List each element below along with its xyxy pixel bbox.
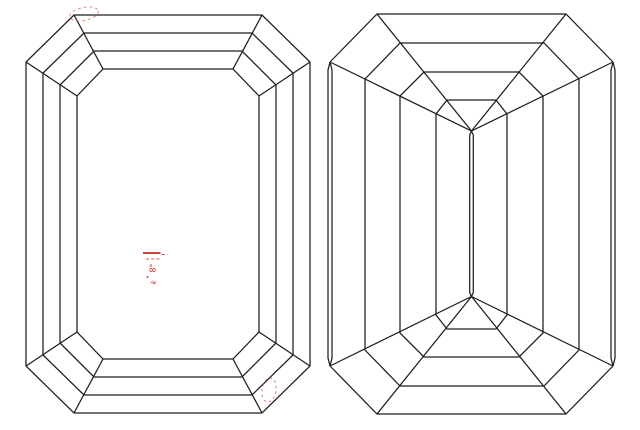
pavilion-fan-line [472,297,614,367]
dashed-ellipse-top-left [68,5,99,24]
tiny-rotated-label-2: k [150,278,159,285]
girdle-sliver-inner [611,62,613,366]
tiny-dot [147,276,149,278]
crown-step-ring [60,51,276,377]
pavilion-step-ring [436,100,507,329]
diagram-canvas: 8°k [0,0,640,430]
girdle-sliver-outer [328,62,330,366]
crown-step-ring [43,33,293,395]
crown-corner-connector [26,332,77,366]
crown-corner-connector [26,62,77,96]
pavilion-bottom-view [328,14,615,414]
crown-corner-connector [259,332,310,366]
crown-top-view [26,15,310,413]
girdle-sliver-outer [613,62,615,366]
pavilion-girdle-top [330,14,613,62]
pavilion-fan-line [472,297,567,415]
tiny-rotated-label: 8° [149,263,158,272]
girdle-outline [26,15,310,413]
emerald-cut-wireframe: 8°k [0,0,640,430]
crown-corner-connector [233,359,262,413]
table-outline [77,69,259,359]
crown-corner-connector [74,359,103,413]
girdle-sliver-inner [330,62,332,366]
dashed-ellipse-bottom-right [260,377,278,403]
pavilion-step-ring [400,72,543,357]
pavilion-fan-line [377,297,472,415]
keel-line [470,131,474,297]
pavilion-girdle-bottom [330,366,613,414]
crown-corner-connector [233,15,262,69]
crown-corner-connector [74,15,103,69]
pavilion-fan-line [330,297,472,367]
crown-corner-connector [259,62,310,96]
